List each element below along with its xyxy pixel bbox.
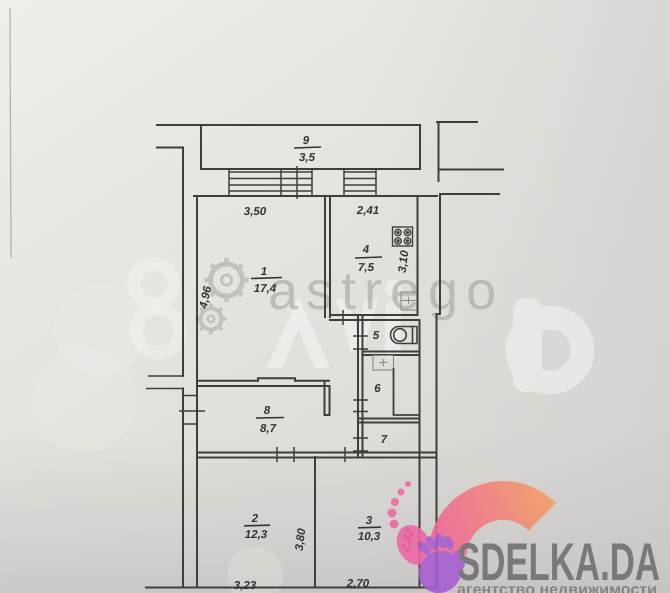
svg-text:3: 3 <box>366 515 373 527</box>
svg-text:2,41: 2,41 <box>356 205 379 217</box>
svg-text:5: 5 <box>373 330 380 342</box>
svg-text:2: 2 <box>251 513 259 525</box>
svg-text:3,50: 3,50 <box>244 206 267 218</box>
svg-text:агентство недвижимости: агентство недвижимости <box>457 582 657 593</box>
svg-text:12,3: 12,3 <box>245 529 268 541</box>
svg-text:8,7: 8,7 <box>260 423 277 435</box>
svg-text:7,5: 7,5 <box>358 262 375 274</box>
svg-text:7: 7 <box>381 434 388 446</box>
svg-text:3,23: 3,23 <box>234 580 257 592</box>
svg-text:astrego: astrego <box>268 261 504 321</box>
svg-text:1: 1 <box>261 266 267 278</box>
svg-text:17,4: 17,4 <box>254 283 277 295</box>
svg-text:3,5: 3,5 <box>299 152 316 164</box>
svg-text:8: 8 <box>264 405 271 417</box>
svg-text:10,3: 10,3 <box>358 531 381 543</box>
svg-text:6: 6 <box>374 383 381 395</box>
svg-text:2,70: 2,70 <box>346 578 370 590</box>
svg-text:9: 9 <box>303 135 310 147</box>
svg-text:4: 4 <box>362 244 370 256</box>
